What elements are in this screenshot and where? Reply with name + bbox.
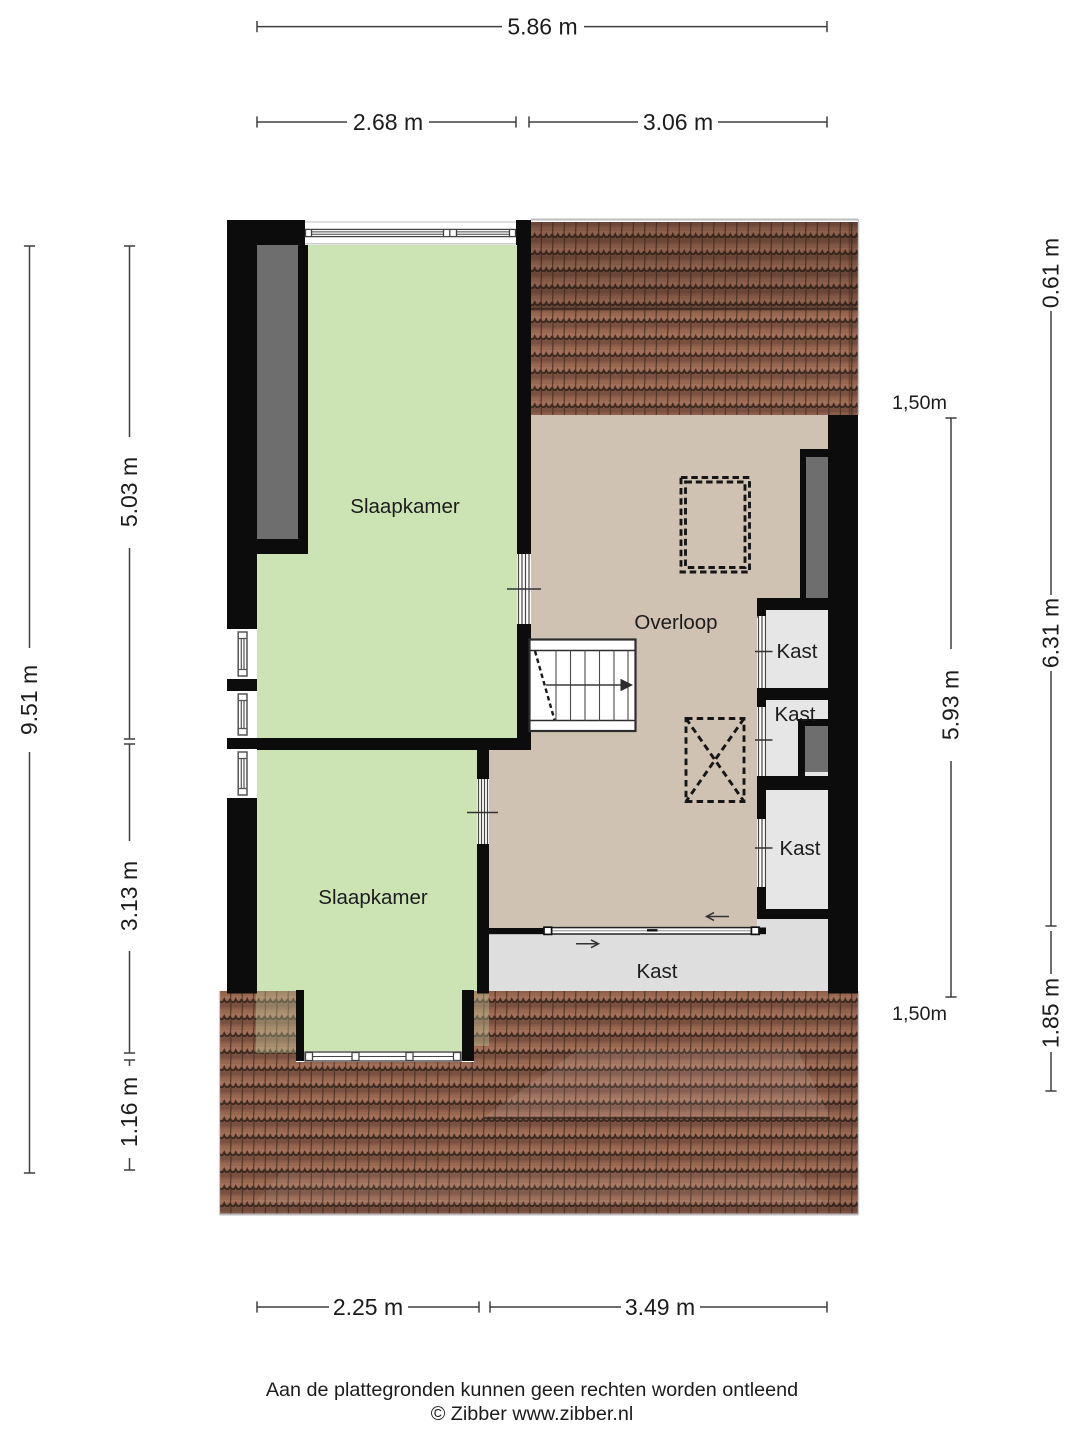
svg-text:Overloop: Overloop — [634, 611, 717, 634]
svg-text:3.49 m: 3.49 m — [625, 1294, 695, 1320]
svg-text:5.93 m: 5.93 m — [938, 670, 964, 740]
svg-text:Aan de plattegronden kunnen ge: Aan de plattegronden kunnen geen rechten… — [266, 1379, 798, 1401]
svg-text:Slaapkamer: Slaapkamer — [318, 886, 428, 909]
svg-text:Kast: Kast — [636, 960, 677, 983]
svg-text:3.13 m: 3.13 m — [116, 861, 142, 931]
svg-text:5.86 m: 5.86 m — [507, 14, 577, 40]
svg-text:5.03 m: 5.03 m — [116, 457, 142, 527]
svg-text:9.51 m: 9.51 m — [16, 665, 42, 735]
svg-text:1.85 m: 1.85 m — [1038, 978, 1064, 1048]
svg-text:0.61 m: 0.61 m — [1038, 238, 1064, 308]
svg-text:© Zibber www.zibber.nl: © Zibber www.zibber.nl — [431, 1403, 634, 1425]
svg-text:6.31 m: 6.31 m — [1038, 598, 1064, 668]
svg-text:Kast: Kast — [774, 703, 815, 726]
svg-text:1.16 m: 1.16 m — [116, 1077, 142, 1147]
svg-text:2.68 m: 2.68 m — [353, 109, 423, 135]
svg-text:Kast: Kast — [779, 837, 820, 860]
svg-text:Kast: Kast — [776, 640, 817, 663]
svg-text:2.25 m: 2.25 m — [333, 1294, 403, 1320]
svg-text:1,50m: 1,50m — [892, 392, 947, 414]
svg-text:3.06 m: 3.06 m — [643, 109, 713, 135]
svg-text:1,50m: 1,50m — [892, 1003, 947, 1025]
svg-text:Slaapkamer: Slaapkamer — [350, 495, 460, 518]
